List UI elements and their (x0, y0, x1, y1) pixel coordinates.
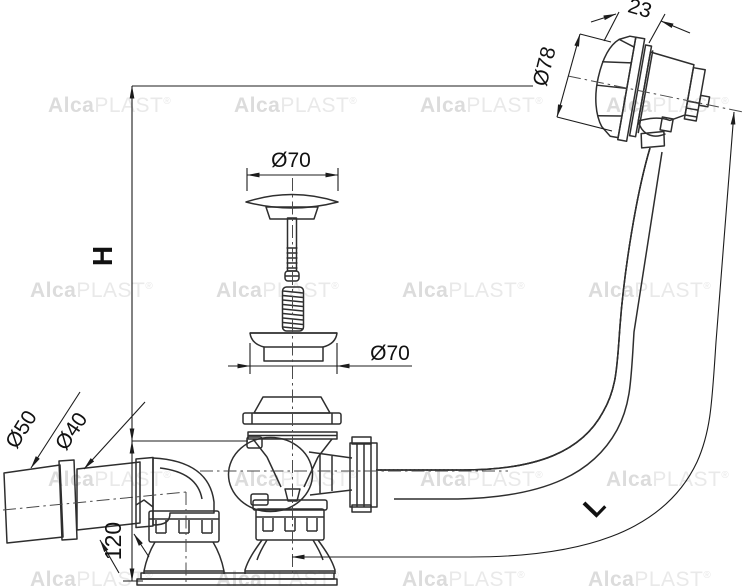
alcaplast-watermark: AlcaPLAST® (606, 468, 729, 491)
dim-label-dia78: Ø78 (529, 44, 561, 88)
hose-inner-tube-line (394, 152, 662, 499)
knob-cap (588, 32, 635, 138)
corrugated-hose (376, 148, 662, 499)
alcaplast-watermark: AlcaPLAST® (30, 568, 153, 587)
dim-label-dia50: Ø50 (1, 407, 42, 453)
alcaplast-watermark: AlcaPLAST® (402, 568, 525, 587)
alcaplast-watermark: AlcaPLAST® (420, 94, 543, 117)
waste-body (229, 432, 378, 574)
alcaplast-watermark: AlcaPLAST® (588, 568, 711, 587)
dim-knob-dia-line (557, 34, 580, 117)
dim-label-120: 120 (100, 522, 126, 560)
dim-label-dia70-plug: Ø70 (271, 149, 311, 172)
alcaplast-watermark: AlcaPLAST® (48, 94, 171, 117)
castle-nut-left (149, 511, 219, 542)
watermark-layer: AlcaPLAST®AlcaPLAST®AlcaPLAST®AlcaPLAST®… (30, 94, 729, 587)
dim-label-dia40: Ø40 (51, 408, 92, 454)
alcaplast-watermark: AlcaPLAST® (402, 279, 525, 302)
plug-assembly (246, 195, 338, 332)
dim-label-h: H (87, 246, 118, 266)
alcaplast-watermark: AlcaPLAST® (588, 279, 711, 302)
trap-bell-left (144, 542, 224, 574)
dim-label-l: L (577, 489, 611, 523)
dim-label-23: 23 (625, 0, 654, 23)
drawing-canvas: AlcaPLAST®AlcaPLAST®AlcaPLAST®AlcaPLAST®… (0, 0, 743, 587)
alcaplast-watermark: AlcaPLAST® (234, 94, 357, 117)
alcaplast-watermark: AlcaPLAST® (30, 279, 153, 302)
funnel-seal (250, 333, 337, 361)
castle-nut-right (256, 509, 324, 540)
dim-label-dia70-seal: Ø70 (370, 342, 410, 365)
alcaplast-watermark: AlcaPLAST® (216, 279, 339, 302)
technical-drawing: AlcaPLAST®AlcaPLAST®AlcaPLAST®AlcaPLAST®… (0, 0, 743, 587)
